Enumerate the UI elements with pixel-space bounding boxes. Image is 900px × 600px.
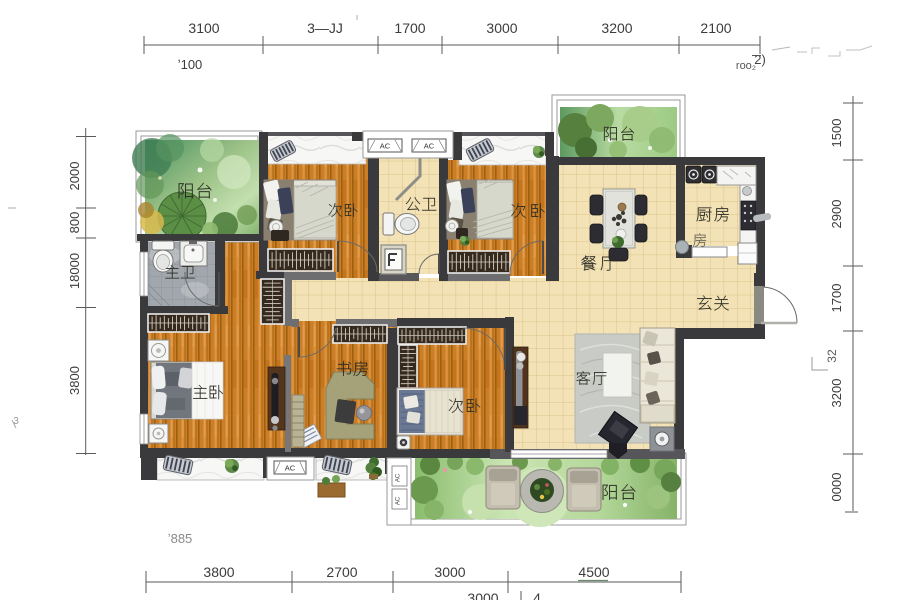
svg-text:1700: 1700 xyxy=(829,284,844,313)
svg-text:800: 800 xyxy=(67,212,82,234)
svg-text:3000: 3000 xyxy=(467,590,498,600)
svg-text:3—JJ: 3—JJ xyxy=(307,20,343,36)
svg-text:18000: 18000 xyxy=(67,253,82,289)
svg-text:3: 3 xyxy=(13,416,19,427)
svg-text:ı: ı xyxy=(356,12,359,22)
svg-text:1500: 1500 xyxy=(829,119,844,148)
svg-text:AC: AC xyxy=(380,142,391,151)
svg-text:3100: 3100 xyxy=(188,20,219,36)
svg-text:2100: 2100 xyxy=(700,20,731,36)
svg-text:3000: 3000 xyxy=(434,564,465,580)
svg-text:2700: 2700 xyxy=(326,564,357,580)
svg-text:ʼ885: ʼ885 xyxy=(168,531,193,546)
svg-text:4: 4 xyxy=(533,590,541,600)
svg-text:AC: AC xyxy=(285,464,296,473)
svg-text:3800: 3800 xyxy=(203,564,234,580)
svg-text:0000: 0000 xyxy=(829,473,844,502)
svg-text:2000: 2000 xyxy=(67,162,82,191)
svg-text:2): 2) xyxy=(754,52,766,67)
svg-text:32: 32 xyxy=(825,349,839,363)
svg-text:AC: AC xyxy=(424,142,435,151)
svg-text:roo₂: roo₂ xyxy=(736,60,756,72)
svg-text:4500: 4500 xyxy=(578,564,609,580)
svg-text:3000: 3000 xyxy=(486,20,517,36)
svg-text:1700: 1700 xyxy=(394,20,425,36)
svg-text:3800: 3800 xyxy=(67,366,82,395)
svg-text:AC: AC xyxy=(396,473,402,482)
svg-text:3200: 3200 xyxy=(601,20,632,36)
svg-text:3200: 3200 xyxy=(829,379,844,408)
svg-text:AC: AC xyxy=(396,496,402,505)
svg-text:ʼ100: ʼ100 xyxy=(178,57,203,72)
svg-text:2900: 2900 xyxy=(829,200,844,229)
